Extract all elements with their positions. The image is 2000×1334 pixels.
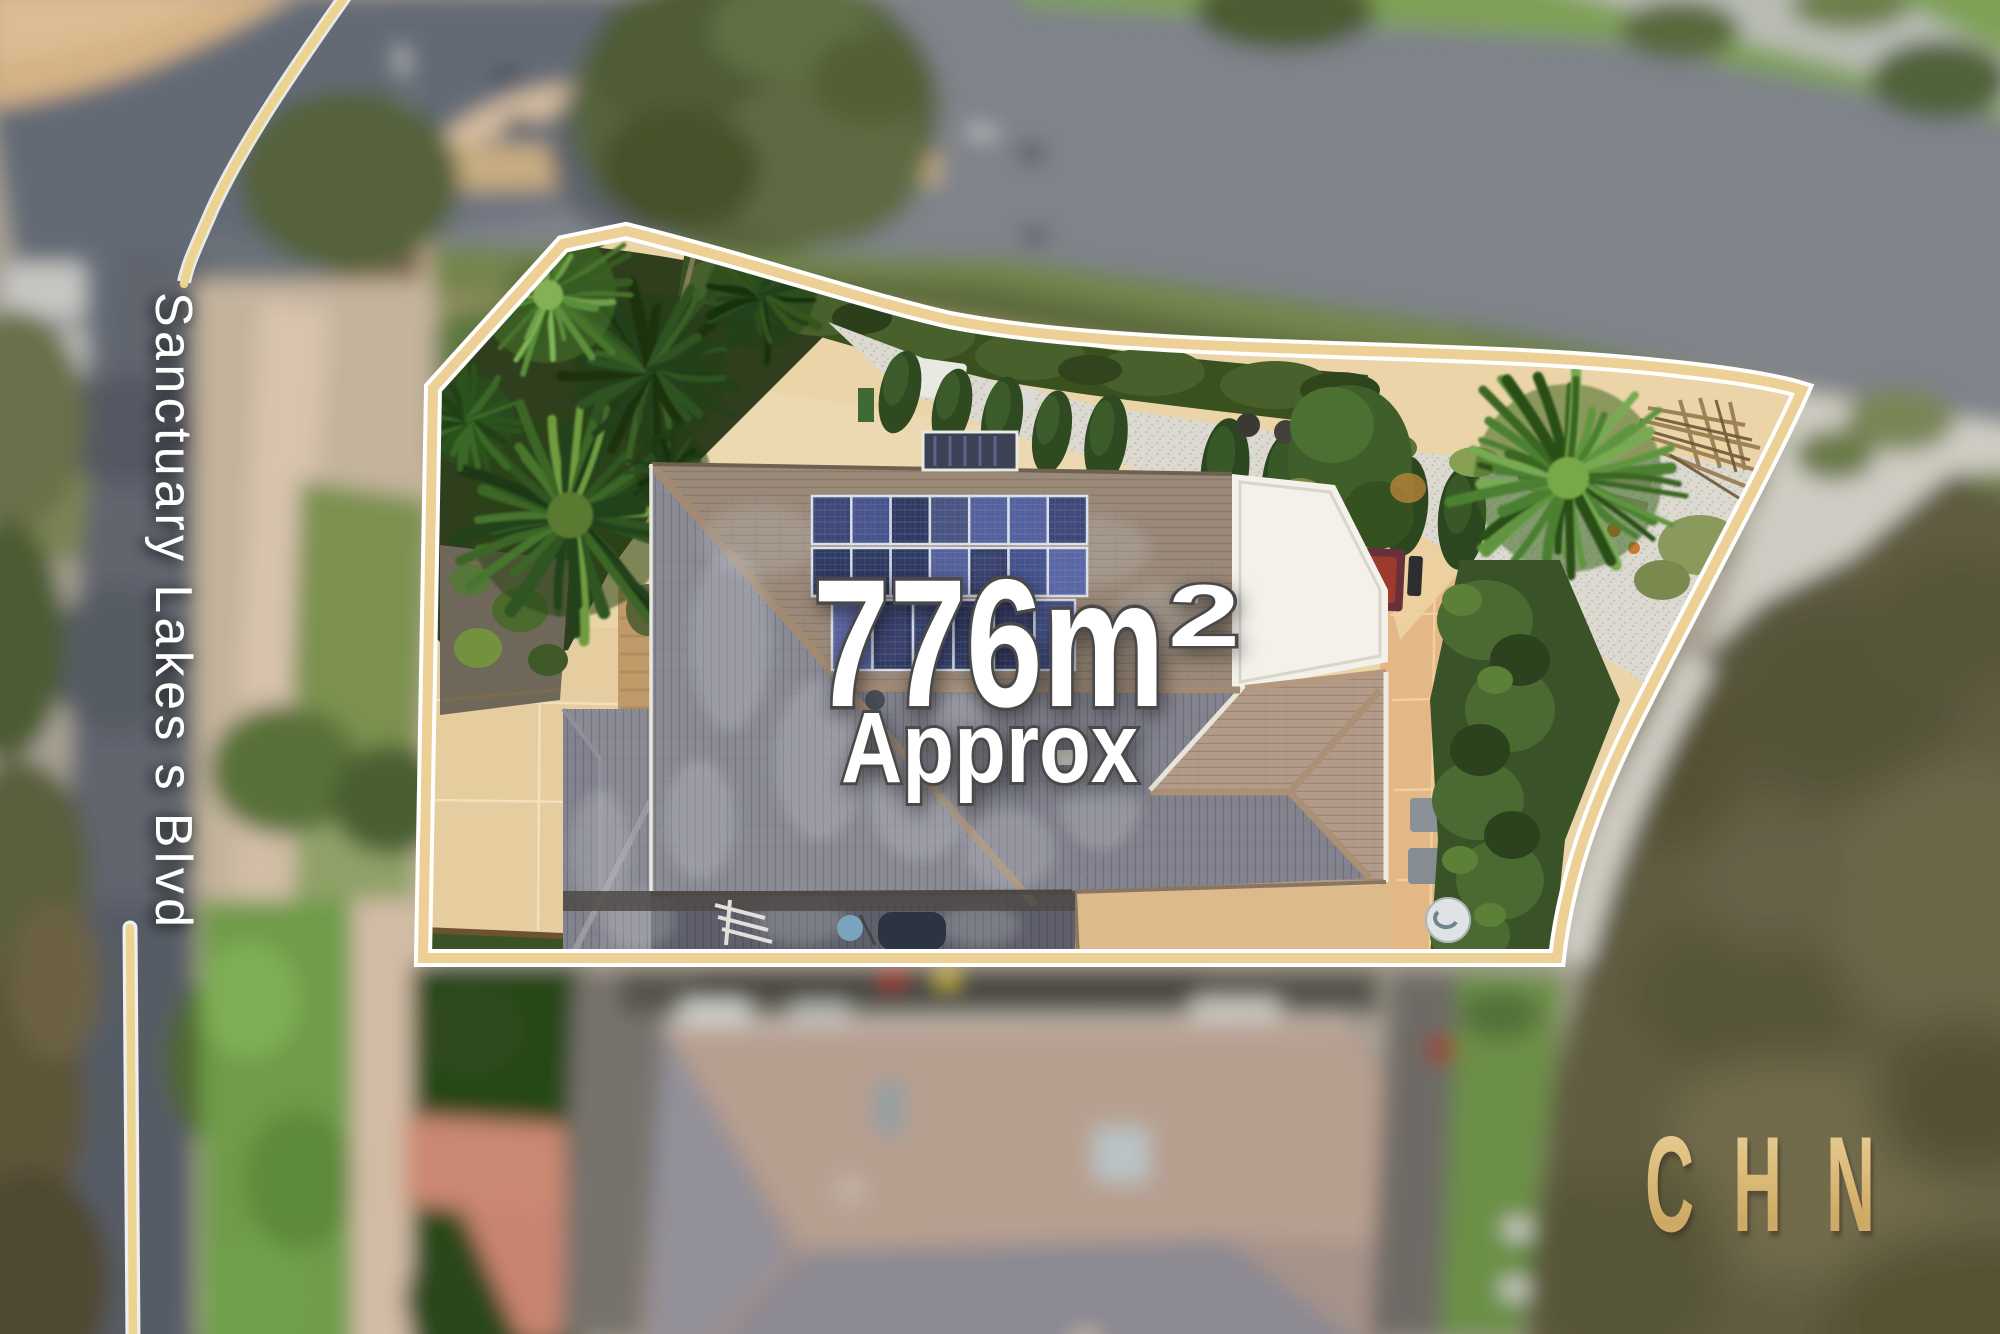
- svg-text:Approx: Approx: [841, 692, 1138, 804]
- svg-text:C: C: [1645, 1108, 1694, 1260]
- svg-text:Sanctuary Lakes s Blvd: Sanctuary Lakes s Blvd: [144, 292, 202, 927]
- svg-text:2: 2: [1168, 566, 1240, 665]
- svg-text:H: H: [1733, 1108, 1782, 1260]
- svg-text:N: N: [1826, 1108, 1875, 1260]
